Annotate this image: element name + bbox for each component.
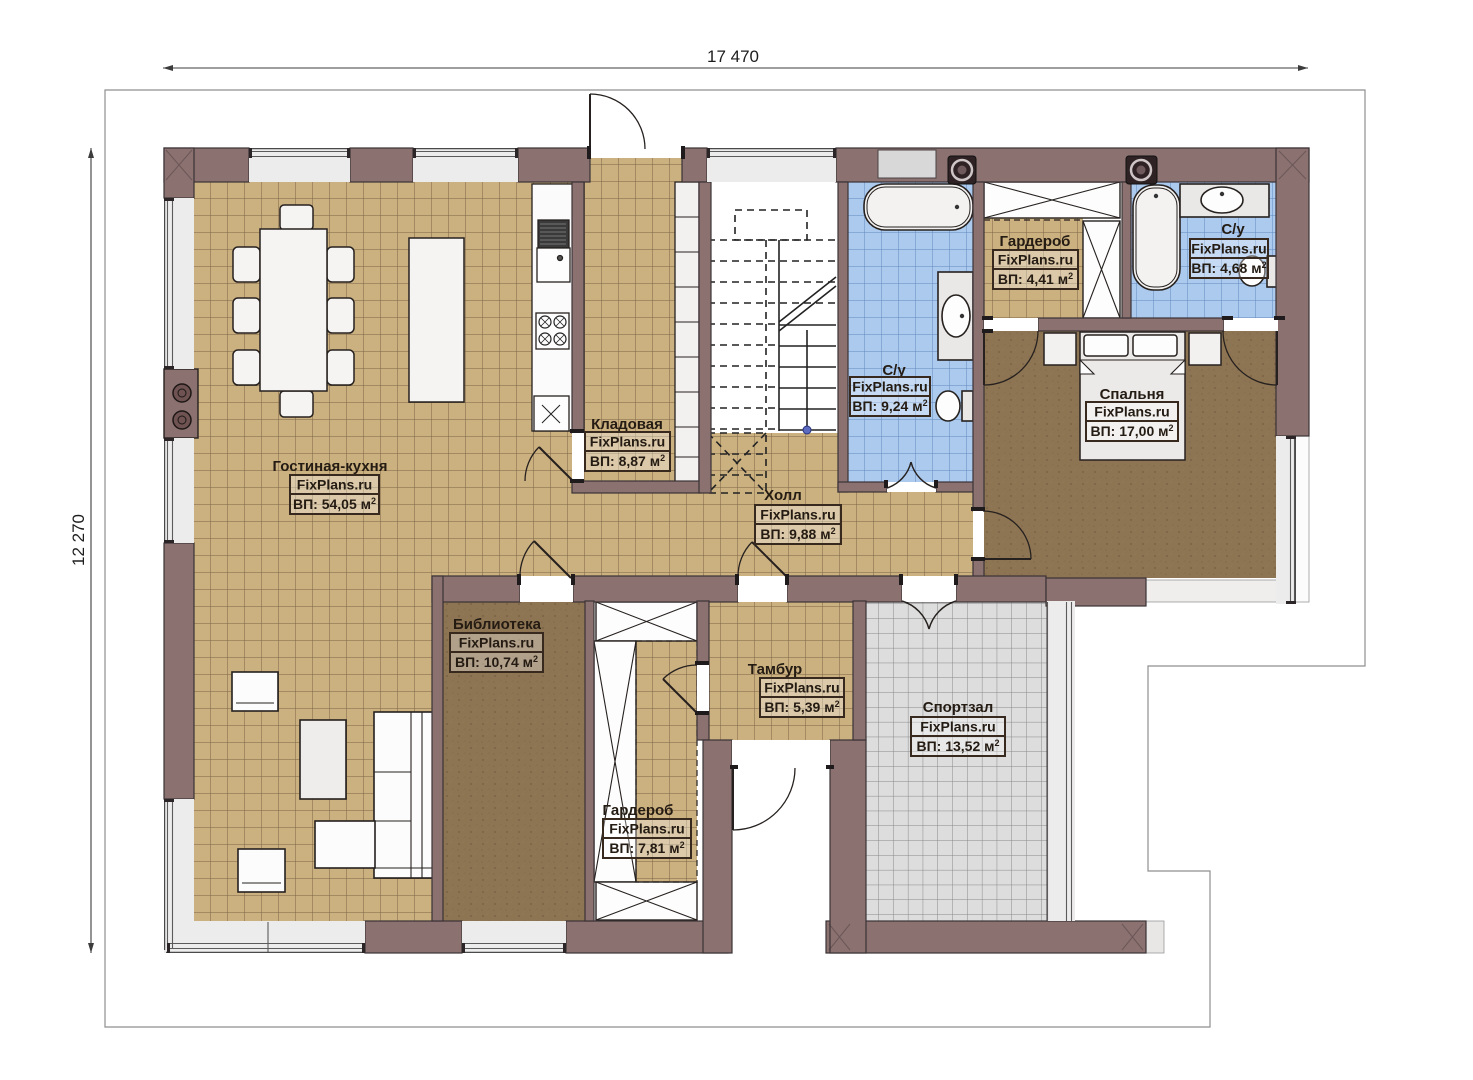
svg-text:FixPlans.ru: FixPlans.ru (764, 680, 839, 696)
svg-text:Спальня: Спальня (1100, 386, 1165, 403)
svg-text:FixPlans.ru: FixPlans.ru (760, 507, 835, 523)
svg-text:ВП: 7,81 м2: ВП: 7,81 м2 (609, 840, 684, 856)
svg-text:Кладовая: Кладовая (591, 416, 663, 433)
svg-text:ВП: 17,00 м2: ВП: 17,00 м2 (1090, 423, 1173, 439)
svg-text:FixPlans.ru: FixPlans.ru (297, 477, 372, 493)
svg-text:FixPlans.ru: FixPlans.ru (998, 252, 1073, 268)
svg-text:ВП: 4,41 м2: ВП: 4,41 м2 (998, 271, 1073, 287)
svg-text:Гардероб: Гардероб (1000, 233, 1071, 250)
svg-text:FixPlans.ru: FixPlans.ru (920, 719, 995, 735)
svg-text:Тамбур: Тамбур (748, 661, 802, 678)
svg-text:Библиотека: Библиотека (453, 616, 542, 633)
svg-text:ВП: 5,39 м2: ВП: 5,39 м2 (764, 699, 839, 715)
svg-text:ВП: 9,24 м2: ВП: 9,24 м2 (852, 398, 927, 414)
svg-text:ВП: 13,52 м2: ВП: 13,52 м2 (916, 738, 999, 754)
svg-text:Холл: Холл (764, 487, 802, 504)
svg-text:12 270: 12 270 (69, 514, 88, 566)
svg-text:ВП: 9,88 м2: ВП: 9,88 м2 (760, 526, 835, 542)
svg-text:FixPlans.ru: FixPlans.ru (852, 379, 927, 395)
svg-text:FixPlans.ru: FixPlans.ru (609, 821, 684, 837)
svg-text:ВП: 4,68 м2: ВП: 4,68 м2 (1191, 260, 1266, 276)
svg-text:Спортзал: Спортзал (923, 699, 994, 716)
svg-text:FixPlans.ru: FixPlans.ru (1094, 404, 1169, 420)
svg-text:ВП: 10,74 м2: ВП: 10,74 м2 (455, 654, 538, 670)
svg-text:Гостиная-кухня: Гостиная-кухня (273, 458, 388, 475)
svg-text:FixPlans.ru: FixPlans.ru (459, 635, 534, 651)
svg-text:Гардероб: Гардероб (603, 802, 674, 819)
svg-text:FixPlans.ru: FixPlans.ru (590, 434, 665, 450)
svg-text:FixPlans.ru: FixPlans.ru (1191, 241, 1266, 257)
svg-text:ВП: 8,87 м2: ВП: 8,87 м2 (590, 453, 665, 469)
svg-text:17 470: 17 470 (707, 47, 759, 66)
svg-text:С/у: С/у (1221, 221, 1245, 238)
svg-text:ВП: 54,05 м2: ВП: 54,05 м2 (293, 496, 376, 512)
